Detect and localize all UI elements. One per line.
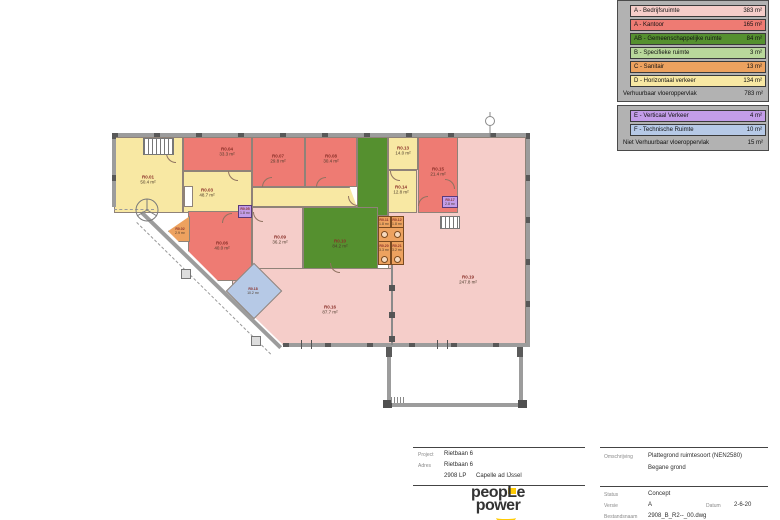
yard-hatch [391, 397, 405, 403]
logo-yellow-smile [496, 514, 516, 520]
yard-wall-bottom [387, 403, 523, 407]
door-tick [447, 340, 448, 349]
wall-right [526, 133, 530, 347]
room-label-R0.08: R0.0830.4 m² [323, 154, 338, 165]
yard-corner [518, 400, 527, 408]
room-label-R0.19: R0.19247.8 m² [459, 275, 477, 286]
sink-fixture [394, 231, 401, 238]
staircase-right [440, 216, 460, 229]
staircase-left [143, 138, 174, 155]
room-label-R0.03: R0.0348.7 m² [199, 188, 214, 199]
bestandsnaam-label: Bestandsnaam [604, 514, 637, 520]
wall-top [112, 133, 530, 137]
toilet-fixture [394, 256, 401, 263]
versie-value: A [648, 502, 652, 508]
room-label-R0.07: R0.0729.8 m² [270, 154, 285, 165]
room-label-R0.01: R0.0150.4 m² [140, 175, 155, 186]
grid-marker [181, 269, 191, 279]
room-label-R0.10: R0.1084.2 m² [332, 239, 347, 250]
people-power-logo: peopLe power [448, 486, 548, 513]
room-label-R0.04: R0.0433.3 m² [219, 147, 234, 158]
status-value: Concept [648, 491, 670, 497]
door-tick [437, 340, 438, 349]
room-label-R0.21: R0.213.2 m² [392, 244, 402, 252]
project-value: Rietbaan 6 [444, 451, 473, 457]
bestandsnaam-value: 2908_B_R2--_00.dwg [648, 513, 706, 519]
room-R0.04-kantoor [183, 137, 252, 171]
datum-value: 2-6-20 [734, 502, 751, 508]
room-label-R0.11: R0.111.8 m² [379, 218, 389, 226]
room-label-R0.17: R0.172.8 m² [445, 198, 455, 206]
postcode-value: 2908 LP [444, 473, 466, 479]
tenant-boundary-line [391, 265, 393, 345]
shaft [184, 186, 193, 207]
titleblock-rule [413, 447, 585, 448]
logo-line2: power [448, 499, 548, 513]
project-label: Project [418, 452, 434, 458]
room-label-R0.18: R0.1810.2 m² [247, 287, 259, 295]
omschrijving-label: Omschrijving [604, 454, 633, 460]
omschrijving-value: Plattegrond ruimtesoort (NEN2580) [648, 453, 742, 459]
yard-post [517, 347, 523, 357]
datum-label: Datum [706, 503, 721, 509]
titleblock-rule [600, 447, 768, 448]
sink-fixture [381, 231, 388, 238]
column [389, 336, 395, 342]
room-label-R0.13: R0.1314.0 m² [395, 146, 410, 157]
room-label-R0.20: R0.203.3 m² [379, 244, 389, 252]
drawing-page: A - Bedrijfsruimte 383 m² A - Kantoor 16… [0, 0, 780, 520]
adres-label: Adres [418, 463, 431, 469]
room-label-R0.06: R0.0640.0 m² [214, 241, 229, 252]
yard-post [386, 347, 392, 357]
room-label-R0.14: R0.1412.8 m² [393, 185, 408, 196]
room-label-R0.16: R0.1687.7 m² [322, 305, 337, 316]
toilet-fixture [381, 256, 388, 263]
room-label-R0.02: R0.022.9 m² [175, 227, 185, 235]
versie-label: Versie [604, 503, 618, 509]
plaats-value: Capelle ad IJssel [476, 473, 522, 479]
room-label-R0.09: R0.0936.2 m² [272, 235, 287, 246]
wall-bottom [283, 343, 530, 347]
room-label-R0.15: R0.1521.4 m² [430, 167, 445, 178]
adres-value: Rietbaan 6 [444, 462, 473, 468]
wall-left [112, 133, 116, 207]
grid-marker [251, 336, 261, 346]
grid-axis-icon [483, 112, 497, 138]
room-label-R0.05: R0.051.8 m² [240, 207, 250, 215]
subtitle-value: Begane grond [648, 465, 686, 471]
door-tick [311, 340, 312, 349]
room-R0.10-gemeenschappelijk-strip [357, 137, 388, 216]
floor-plan: R0.0150.4 m² R0.022.9 m² R0.0348.7 m² R0… [0, 0, 780, 520]
corridor-verkeer [252, 187, 357, 207]
status-label: Status [604, 492, 618, 498]
titleblock-rule [600, 486, 768, 487]
room-label-R0.12: R0.121.8 m² [392, 218, 402, 226]
door-tick [301, 340, 302, 349]
revolving-door-icon [133, 196, 161, 224]
column [389, 285, 395, 291]
column [389, 312, 395, 318]
